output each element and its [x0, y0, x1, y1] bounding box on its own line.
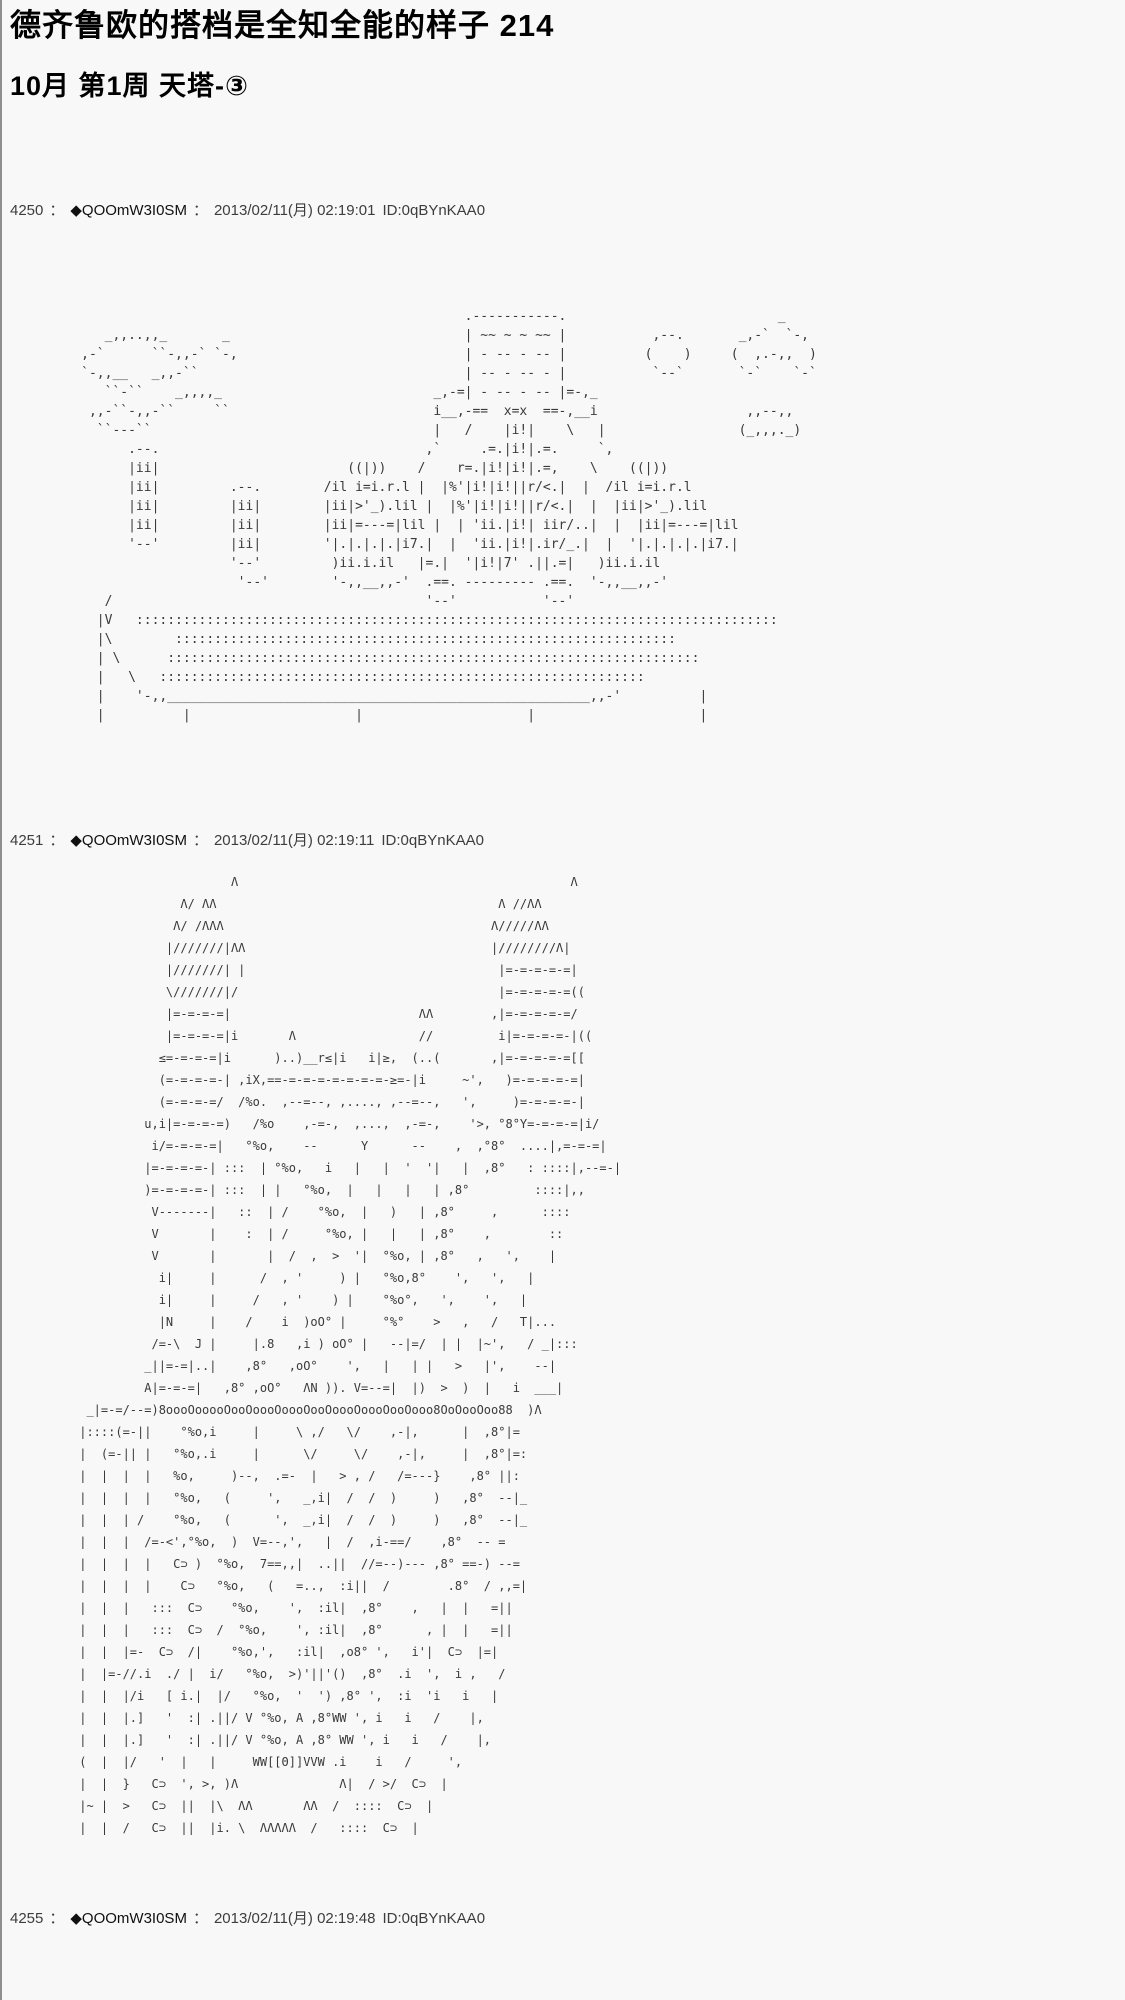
post-id: ID:0qBYnKAA0: [381, 832, 484, 849]
ascii-art-tower-figure: Λ Λ Λ/ ΛΛ Λ //ΛΛ Λ/ /ΛΛΛ Λ/////ΛΛ |////: [72, 871, 1123, 1839]
separator: ：: [193, 832, 208, 849]
tripcode: ◆QOOmW3I0SM: [70, 832, 187, 849]
tripcode: ◆QOOmW3I0SM: [70, 1910, 187, 1927]
thread-title: 德齐鲁欧的搭档是全知全能的样子 214: [10, 8, 1123, 44]
separator: ：: [49, 1910, 64, 1927]
post-4250: 4250：◆QOOmW3I0SM：2013/02/11(月) 02:19:01I…: [10, 201, 1123, 725]
post-id: ID:0qBYnKAA0: [382, 202, 485, 219]
ascii-art-castle-gate: .-----------. _ _,,..,,_ _ | ~~ ~ ~ ~~ |…: [42, 307, 1123, 725]
post-4251: 4251：◆QOOmW3I0SM：2013/02/11(月) 02:19:11I…: [10, 831, 1123, 1839]
post-header: 4250：◆QOOmW3I0SM：2013/02/11(月) 02:19:01I…: [10, 201, 1123, 221]
post-datetime: 2013/02/11(月) 02:19:48: [214, 1910, 376, 1927]
tripcode: ◆QOOmW3I0SM: [70, 202, 187, 219]
separator: ：: [49, 202, 64, 219]
post-datetime: 2013/02/11(月) 02:19:11: [214, 832, 374, 849]
post-header: 4251：◆QOOmW3I0SM：2013/02/11(月) 02:19:11I…: [10, 831, 1123, 851]
post-datetime: 2013/02/11(月) 02:19:01: [214, 202, 376, 219]
separator: ：: [193, 1910, 208, 1927]
thread-subtitle: 10月 第1周 天塔-③: [10, 70, 1123, 102]
thread-page: 德齐鲁欧的搭档是全知全能的样子 214 10月 第1周 天塔-③ 4250：◆Q…: [2, 0, 1123, 1929]
post-number: 4255: [10, 1910, 43, 1927]
post-4255: 4255：◆QOOmW3I0SM：2013/02/11(月) 02:19:48I…: [10, 1909, 1123, 1929]
post-id: ID:0qBYnKAA0: [382, 1910, 485, 1927]
post-header: 4255：◆QOOmW3I0SM：2013/02/11(月) 02:19:48I…: [10, 1909, 1123, 1929]
separator: ：: [193, 202, 208, 219]
post-number: 4250: [10, 202, 43, 219]
separator: ：: [49, 832, 64, 849]
post-number: 4251: [10, 832, 43, 849]
